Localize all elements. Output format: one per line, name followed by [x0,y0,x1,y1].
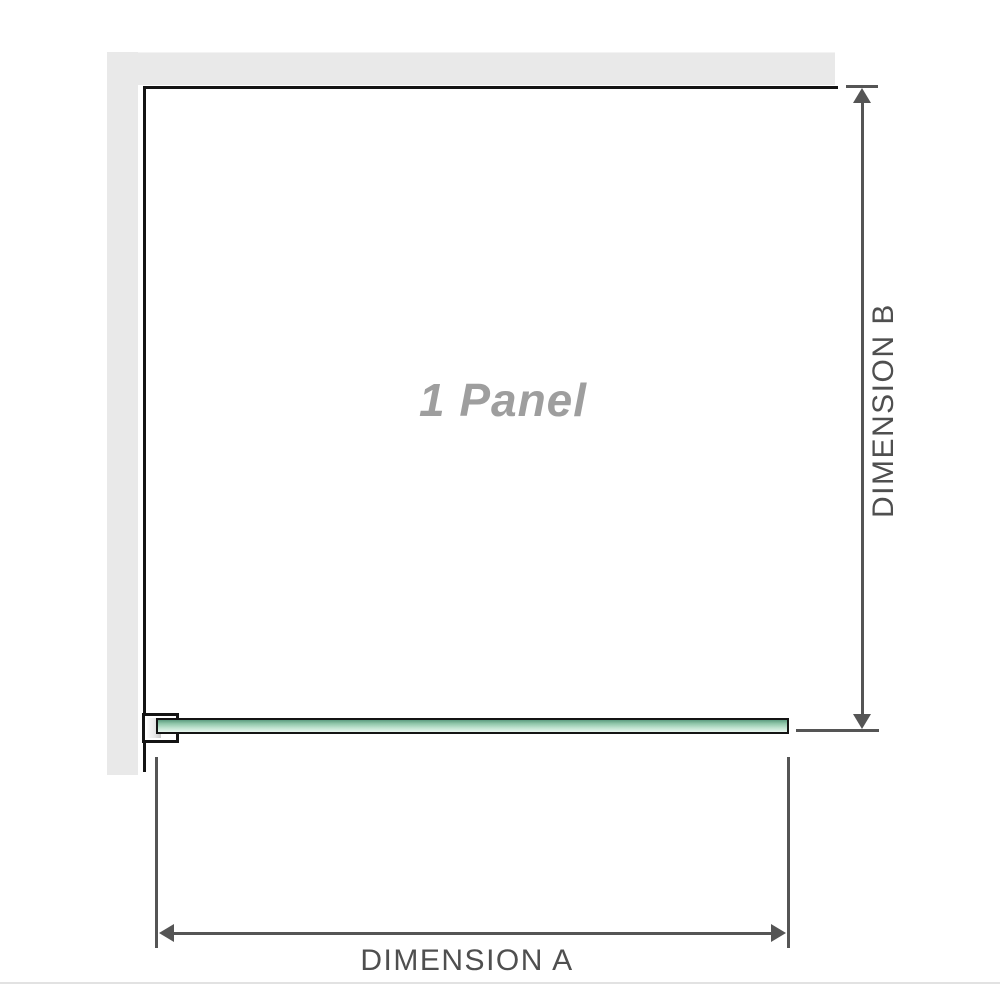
bottom-divider [0,982,1000,984]
dimension-b-line [861,97,864,722]
arrow-up-icon [853,88,871,103]
panel-label: 1 Panel [300,372,706,428]
glass-panel [156,718,789,734]
wall-top [107,52,835,85]
arrow-left-icon [159,924,174,942]
dimension-a-label: DIMENSION A [267,944,667,978]
dimension-b-tick-bottom [796,729,879,732]
dimension-a-line [171,932,773,935]
arrow-right-icon [771,924,786,942]
panel-dimension-diagram: 1 Panel DIMENSION B DIMENSION A [0,0,1000,1000]
dimension-a-extension-left [155,757,158,948]
panel-top-edge [143,86,838,89]
dimension-a-extension-right [787,757,790,948]
wall-left [107,52,138,775]
panel-left-edge [143,86,146,772]
arrow-down-icon [853,714,871,729]
dimension-b-label: DIMENSION B [868,318,900,518]
